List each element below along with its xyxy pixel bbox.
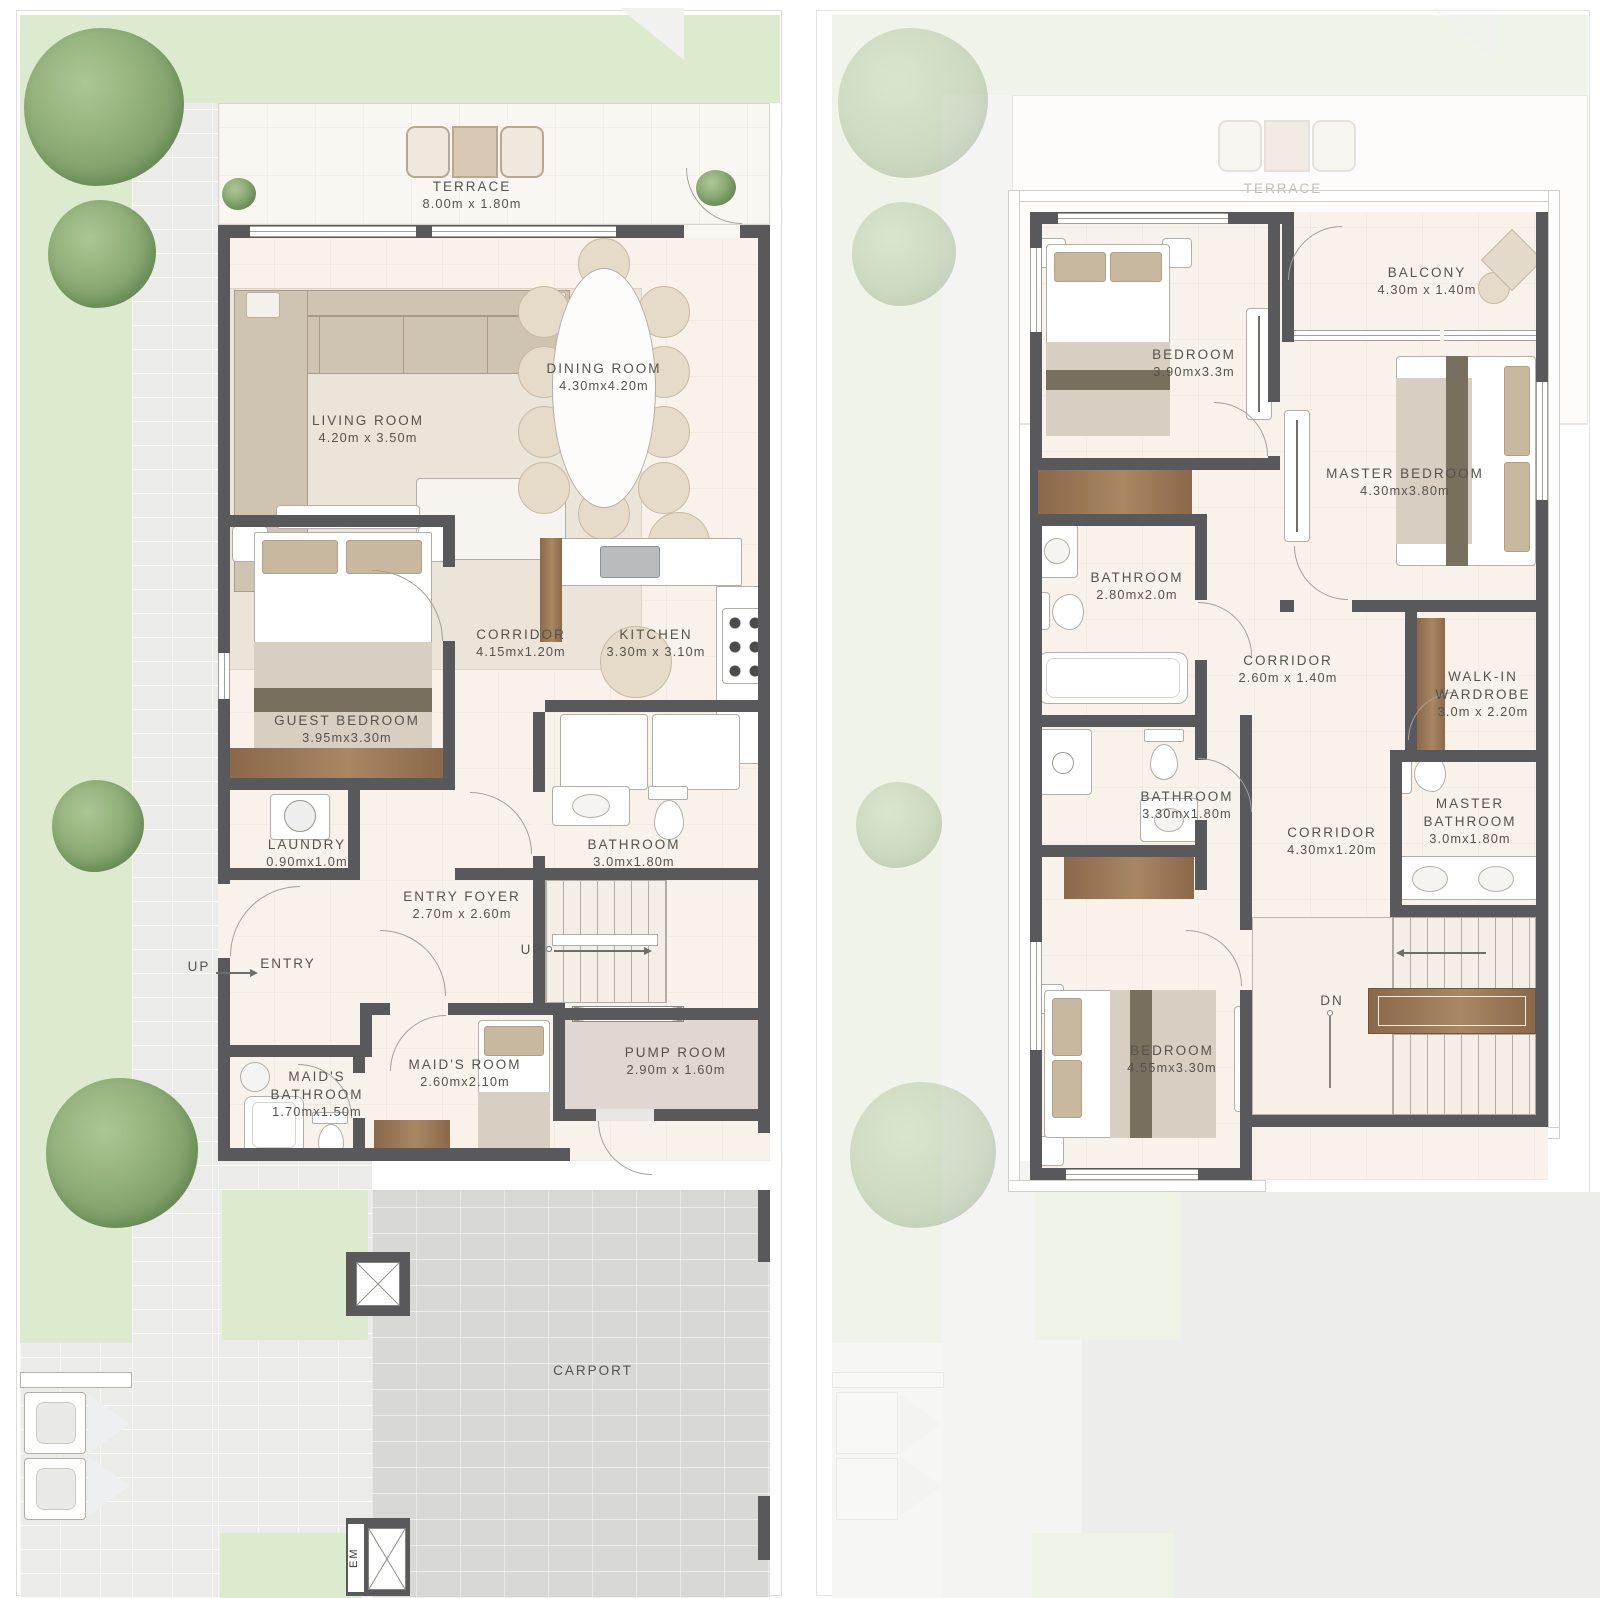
room-name: BEDROOM xyxy=(1127,1042,1217,1060)
room-dims: 3.0mx1.80m xyxy=(588,854,681,871)
wall xyxy=(1030,458,1280,470)
wall xyxy=(533,712,545,792)
pillow xyxy=(1054,252,1106,282)
toilet xyxy=(1144,729,1184,742)
laundry-label: LAUNDRY 0.90mx1.0m xyxy=(266,836,347,871)
wall xyxy=(230,515,455,527)
kitchen-label: KITCHEN 3.30m x 3.10m xyxy=(607,626,706,661)
room-name: DINING ROOM xyxy=(547,360,662,378)
pillow xyxy=(1052,998,1082,1056)
window xyxy=(432,226,616,237)
door-gap xyxy=(218,884,230,958)
room-dims: 4.30m x 1.40m xyxy=(1378,282,1477,299)
wall xyxy=(1240,1115,1252,1180)
pillow xyxy=(262,540,338,574)
terrace-seat xyxy=(500,126,544,178)
bathroom-label: BATHROOM 3.0mx1.80m xyxy=(588,836,681,871)
room-name: CORRIDOR xyxy=(1239,652,1338,670)
ghost-garden-patch xyxy=(1035,1192,1181,1340)
room-dims: 4.55mx3.30m xyxy=(1127,1060,1217,1077)
walk-in-wardrobe-label: WALK-IN WARDROBE 3.0m x 2.20m xyxy=(1426,668,1540,721)
dn-arrow-head xyxy=(1396,949,1404,957)
room-dims: 4.30mx4.20m xyxy=(547,378,662,395)
wall xyxy=(448,1003,565,1015)
room-name: MASTER BATHROOM xyxy=(1417,795,1523,831)
wardrobe xyxy=(1064,857,1194,899)
room-dims: 2.60mx2.10m xyxy=(408,1074,521,1091)
room-name: CORRIDOR xyxy=(476,626,566,644)
wall xyxy=(1390,750,1402,905)
shower-drain xyxy=(1052,752,1074,774)
pillow xyxy=(484,1026,544,1056)
wall xyxy=(1195,514,1207,600)
wall xyxy=(1390,750,1548,762)
ghost-terrace-table xyxy=(1264,120,1310,172)
dn-leader-line xyxy=(1329,1016,1331,1088)
door-gap xyxy=(533,792,545,856)
room-name: CARPORT xyxy=(553,1362,633,1380)
room-name: LIVING ROOM xyxy=(312,412,424,430)
stair-rail xyxy=(552,934,658,946)
wall xyxy=(443,641,455,790)
wall xyxy=(553,1109,770,1121)
shower xyxy=(560,714,648,790)
dining-room-label: DINING ROOM 4.30mx4.20m xyxy=(547,360,662,395)
room-name: BALCONY xyxy=(1378,264,1477,282)
room-name: BEDROOM xyxy=(1152,346,1236,364)
room-name: WALK-IN WARDROBE xyxy=(1426,668,1540,704)
em-label: EM xyxy=(348,1524,360,1592)
window xyxy=(218,653,230,699)
wall xyxy=(218,1148,570,1161)
terrace-table xyxy=(452,126,498,178)
wardrobe xyxy=(1038,470,1192,514)
walkway xyxy=(132,103,218,1598)
em-label-strip: EM xyxy=(348,1524,364,1592)
wall xyxy=(758,1496,770,1560)
ghost-planter xyxy=(836,1458,898,1520)
pillow xyxy=(1052,1060,1082,1118)
master-bedroom-label: MASTER BEDROOM 4.30mx3.80m xyxy=(1326,465,1484,500)
room-name: MASTER BEDROOM xyxy=(1326,465,1484,483)
bed-throw xyxy=(254,688,432,712)
wall xyxy=(1282,330,1294,342)
terrace-label: TERRACE 8.00m x 1.80m xyxy=(423,178,522,213)
room-name: BATHROOM xyxy=(588,836,681,854)
pump-room-label: PUMP ROOM 2.90m x 1.60m xyxy=(625,1044,728,1079)
basin xyxy=(1412,866,1448,892)
ghost-planter xyxy=(836,1392,898,1454)
room-name: MAID'S ROOM xyxy=(408,1056,521,1074)
up-label-entry: UP xyxy=(188,958,211,976)
room-dims: 3.95mx3.30m xyxy=(274,730,420,747)
wall xyxy=(360,1003,372,1057)
ghost-garden-patch xyxy=(1032,1533,1174,1598)
window xyxy=(1066,1169,1198,1180)
basin xyxy=(572,794,610,818)
window xyxy=(1536,382,1548,500)
wall xyxy=(1195,660,1207,760)
room-name: ENTRY xyxy=(260,955,316,973)
wall xyxy=(758,1190,770,1262)
room-dims: 4.30mx1.20m xyxy=(1287,842,1377,859)
window xyxy=(1058,213,1228,224)
room-dims: 3.30mx1.80m xyxy=(1141,806,1234,823)
garden-patch xyxy=(220,1533,362,1598)
wall xyxy=(1268,224,1280,402)
window xyxy=(1030,942,1042,1050)
dn-label: DN xyxy=(1320,992,1344,1010)
room-name: TERRACE xyxy=(423,178,522,196)
bed-throw xyxy=(1446,356,1468,566)
room-dims: 2.60m x 1.40m xyxy=(1239,670,1338,687)
wall xyxy=(348,790,360,880)
room-name: ENTRY FOYER xyxy=(403,888,521,906)
planter-inner xyxy=(36,1402,76,1444)
up-arrow-head xyxy=(250,969,258,977)
sofa-pillow xyxy=(246,292,280,318)
ghost-gate-bar xyxy=(832,1372,944,1388)
window xyxy=(250,226,416,237)
basin xyxy=(1478,866,1514,892)
ghost-terrace-label: TERRACE xyxy=(1244,180,1323,198)
pillow xyxy=(346,540,422,574)
room-name: CORRIDOR xyxy=(1287,824,1377,842)
room-name: KITCHEN xyxy=(607,626,706,644)
column-shaft xyxy=(356,1262,400,1306)
bathroom-top-label: BATHROOM 2.80mx2.0m xyxy=(1091,569,1184,604)
wall xyxy=(565,1008,770,1020)
wall xyxy=(1240,715,1252,930)
room-name: GUEST BEDROOM xyxy=(274,712,420,730)
wall xyxy=(353,1118,365,1160)
entry-foyer-label: ENTRY FOYER 2.70m x 2.60m xyxy=(403,888,521,923)
room-dims: 4.30mx3.80m xyxy=(1326,483,1484,500)
pillow xyxy=(1504,366,1530,456)
door-gap xyxy=(596,1109,654,1121)
room-dims: 4.15mx1.20m xyxy=(476,644,566,661)
room-dims: 8.00m x 1.80m xyxy=(423,196,522,213)
room-dims: 1.70mx1.50m xyxy=(260,1104,374,1121)
wall xyxy=(1030,715,1207,727)
gate-bar xyxy=(20,1372,132,1388)
bedroom-bottom-label: BEDROOM 4.55mx3.30m xyxy=(1127,1042,1217,1077)
window xyxy=(1030,248,1042,332)
up-label-stairs: UP xyxy=(521,941,544,959)
stair-arrow-dot xyxy=(546,946,552,952)
wall xyxy=(443,515,455,567)
maids-room-label: MAID'S ROOM 2.60mx2.10m xyxy=(408,1056,521,1091)
up-arrow-head xyxy=(644,947,652,955)
wardrobe xyxy=(230,748,444,778)
up-arrow-line xyxy=(216,972,250,974)
wall xyxy=(1030,845,1207,857)
wall xyxy=(553,1003,565,1121)
terrace-seat xyxy=(406,126,450,178)
toilet-bowl xyxy=(1150,744,1178,780)
room-dims: 2.80mx2.0m xyxy=(1091,587,1184,604)
corridor-label: CORRIDOR 4.15mx1.20m xyxy=(476,626,566,661)
wall xyxy=(1352,600,1548,612)
room-dims: 3.0mx1.80m xyxy=(1417,831,1523,848)
wall xyxy=(1030,514,1195,526)
stair-rail-inner xyxy=(1378,996,1526,1026)
room-dims: 2.70m x 2.60m xyxy=(403,906,521,923)
wall xyxy=(1390,905,1548,917)
room-name: PUMP ROOM xyxy=(625,1044,728,1062)
room-dims: 4.20m x 3.50m xyxy=(312,430,424,447)
parapet xyxy=(1008,190,1020,1192)
dining-chair xyxy=(518,462,570,514)
bedroom-top-label: BEDROOM 3.90mx3.3m xyxy=(1152,346,1236,381)
entry-label: ENTRY xyxy=(260,955,316,973)
up-arrow-line xyxy=(554,950,644,952)
toilet-bowl xyxy=(1052,594,1084,630)
tv xyxy=(1296,420,1298,532)
carport-label: CARPORT xyxy=(553,1362,633,1380)
balcony-label: BALCONY 4.30m x 1.40m xyxy=(1378,264,1477,299)
ghost-terrace-seat xyxy=(1218,120,1262,172)
toilet-bowl xyxy=(654,800,684,840)
wall xyxy=(1240,1115,1548,1127)
pillow xyxy=(1504,462,1530,552)
wall xyxy=(545,700,770,712)
toilet xyxy=(648,786,688,800)
pillow xyxy=(1110,252,1162,282)
wall xyxy=(758,225,770,1133)
corridor-lower-label: CORRIDOR 4.30mx1.20m xyxy=(1287,824,1377,859)
living-room-label: LIVING ROOM 4.20m x 3.50m xyxy=(312,412,424,447)
stairs xyxy=(1392,917,1536,991)
wall xyxy=(1240,990,1252,1115)
washer-drum xyxy=(284,800,316,832)
room-dims: 3.90mx3.3m xyxy=(1152,364,1236,381)
guest-bedroom-label: GUEST BEDROOM 3.95mx3.30m xyxy=(274,712,420,747)
room-dims: 2.90m x 1.60m xyxy=(625,1062,728,1079)
ghost-terrace-seat xyxy=(1312,120,1356,172)
room-dims: 3.30m x 3.10m xyxy=(607,644,706,661)
planter-inner xyxy=(36,1468,76,1510)
bathtub-inner xyxy=(1046,658,1180,698)
kitchen-sink xyxy=(600,546,660,578)
room-dims: 3.0m x 2.20m xyxy=(1426,704,1540,721)
maids-bathroom-label: MAID'S BATHROOM 1.70mx1.50m xyxy=(260,1068,374,1121)
elevator-shaft xyxy=(368,1528,406,1590)
stairs xyxy=(1392,1034,1536,1115)
dining-chair xyxy=(638,462,690,514)
room-name: BATHROOM xyxy=(1091,569,1184,587)
window xyxy=(1444,330,1536,341)
carport-floor xyxy=(372,1190,770,1598)
room-name: BATHROOM xyxy=(1141,788,1234,806)
parapet xyxy=(1008,1180,1266,1192)
corridor-upper-label: CORRIDOR 2.60m x 1.40m xyxy=(1239,652,1338,687)
parapet xyxy=(1548,190,1560,1139)
room-name: MAID'S BATHROOM xyxy=(260,1068,374,1104)
door-gap xyxy=(684,225,740,238)
room-dims: 0.90mx1.0m xyxy=(266,854,347,871)
basin xyxy=(1044,538,1070,564)
tv xyxy=(1258,316,1260,412)
room-name: LAUNDRY xyxy=(266,836,347,854)
dn-arrow-line xyxy=(1404,952,1486,954)
wall xyxy=(230,1045,365,1057)
bathroom-mid-label: BATHROOM 3.30mx1.80m xyxy=(1141,788,1234,823)
shower xyxy=(652,714,740,790)
master-bathroom-label: MASTER BATHROOM 3.0mx1.80m xyxy=(1417,795,1523,848)
wall xyxy=(218,778,455,790)
window xyxy=(1294,330,1440,341)
wall xyxy=(1280,600,1294,612)
floorplan-canvas: EM TERRACE xyxy=(0,0,1600,1598)
